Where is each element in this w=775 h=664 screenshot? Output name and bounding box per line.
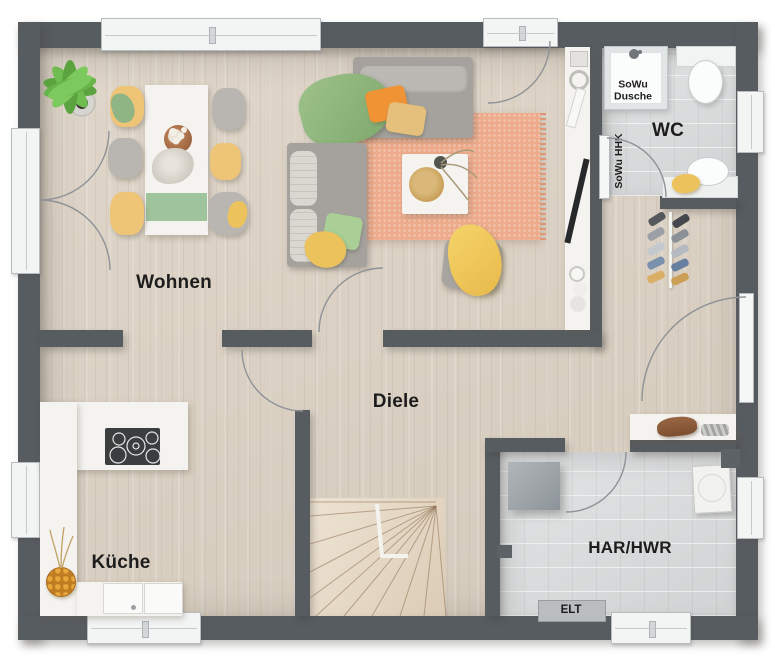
fruit-bowl (46, 567, 76, 597)
sink-faucet (131, 605, 136, 610)
room-label-wc-text: WC (652, 120, 684, 141)
window-wohnen-top (101, 18, 321, 51)
wall-kueche-diele (295, 410, 310, 616)
dining-chair (210, 143, 241, 180)
wall-har-left (485, 438, 500, 616)
french-door-left (11, 128, 40, 274)
room-label-diele-text: Diele (373, 391, 419, 412)
room-label-wc: WC (652, 120, 684, 142)
wall-wohnen-south-b (222, 330, 312, 347)
har-wall-box (497, 545, 512, 558)
shower-label: SoWu Dusche (614, 80, 652, 103)
coffee-table-tray (409, 167, 444, 202)
staircase-area (310, 498, 445, 616)
shower-head-icon (629, 49, 639, 59)
room-label-har: HAR/HWR (588, 538, 672, 558)
dining-chair (108, 138, 142, 178)
toilet-bowl (688, 60, 723, 104)
heating-label-text: SoWu HHK (613, 133, 625, 188)
window-wc-right (737, 91, 764, 153)
entrance-door-leaf (739, 293, 754, 403)
wall-har-top-a (485, 438, 565, 452)
window-kueche-bottom (87, 612, 201, 644)
elt-label-text: ELT (561, 604, 582, 616)
room-label-wohnen: Wohnen (136, 272, 212, 294)
shower-label-line1: SoWu (618, 79, 648, 91)
room-label-har-text: HAR/HWR (588, 538, 672, 557)
room-label-wohnen-text: Wohnen (136, 272, 212, 293)
wall-wohnen-south-c (383, 330, 602, 347)
sink-basin-right (144, 583, 183, 614)
har-corner-unit (721, 449, 740, 468)
heating-label: SoWu HHK (613, 133, 625, 188)
elt-label: ELT (561, 604, 582, 616)
shoe-rack-rail (669, 212, 672, 288)
wc-door-leaf (599, 135, 610, 199)
room-label-diele: Diele (373, 391, 419, 413)
sofa-seat-cushion (290, 151, 317, 206)
floor-plan: SoWu Dusche WC SoWu HHK Diele Küche HAR/… (0, 0, 775, 664)
dining-chair (110, 192, 144, 235)
sink-basin-left (103, 583, 143, 614)
coffee-table-vase (434, 156, 447, 169)
sideboard-decor-boxes (570, 51, 588, 67)
window-kueche-left (11, 462, 40, 538)
wall-left (18, 22, 40, 640)
hall-keys-clutter (701, 424, 729, 436)
window-har-bottom (611, 612, 691, 644)
cooktop (105, 428, 160, 465)
room-label-kueche-text: Küche (91, 552, 150, 573)
sideboard-vases (569, 266, 585, 282)
appliance-grey (508, 462, 560, 510)
shower-label-line2: Dusche (614, 90, 652, 102)
dining-chair (212, 88, 245, 130)
terrace-door-top (483, 18, 558, 47)
room-label-kueche: Küche (91, 552, 150, 574)
window-har-right (737, 477, 764, 539)
pillow-tan (385, 101, 427, 137)
sideboard-decor-ring (569, 70, 589, 90)
wall-wohnen-south-a (40, 330, 123, 347)
table-runner (146, 193, 207, 221)
